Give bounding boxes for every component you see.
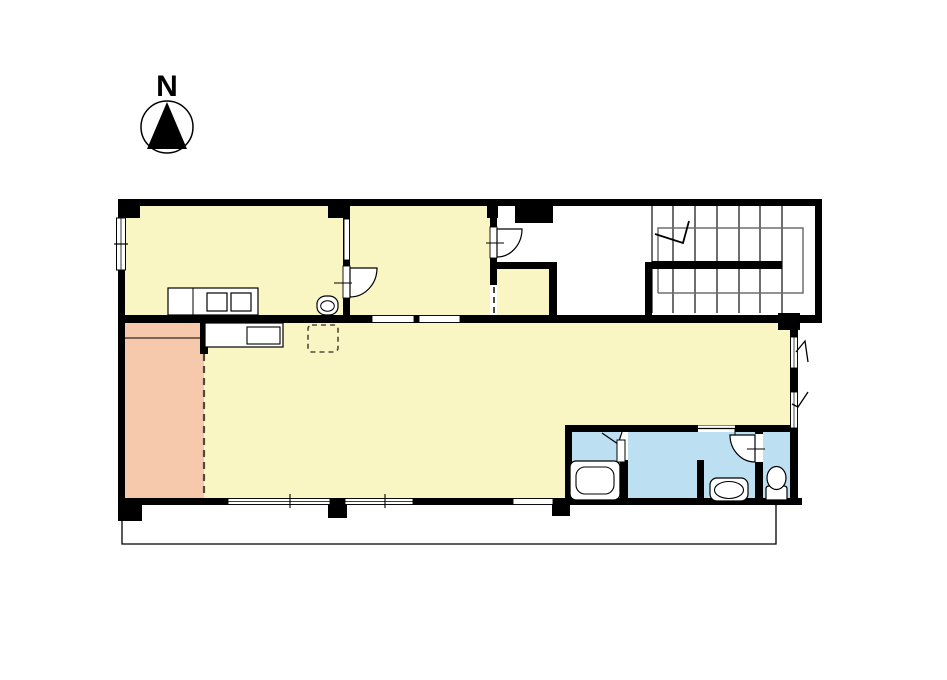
lower-counter (205, 323, 283, 347)
wall-alcove-top (497, 262, 553, 269)
room-bedroom-nook (125, 323, 204, 498)
wall-middle-horizontal (118, 315, 822, 323)
pillar-bottom-right-of-main (552, 498, 570, 516)
wall-washroom-partial (697, 460, 704, 498)
door-hall-entrance (486, 227, 522, 258)
wall-shaft-block (515, 206, 553, 223)
window-right-1 (791, 337, 809, 368)
wall-right-upper (815, 199, 822, 323)
wall-stair-middle (652, 261, 782, 269)
stove-burner-right (231, 293, 251, 311)
wall-bathroom-top (565, 425, 798, 432)
wall-bottom (118, 498, 802, 505)
kitchen-counter (168, 288, 258, 315)
pillar-top-middle (328, 200, 345, 218)
pillar-main-room-top-right (778, 313, 800, 330)
stair-direction-arrow (655, 221, 689, 243)
washbasin (710, 478, 748, 501)
room-top-middle (350, 206, 490, 315)
compass-north-arrow (147, 102, 187, 149)
stove-burner-left (207, 293, 227, 311)
floor-plan-page: N (0, 0, 947, 680)
compass-north-label: N (156, 70, 178, 103)
opening-bottom-wall (513, 499, 553, 505)
pillar-top-left (118, 199, 140, 218)
wall-top (118, 199, 822, 206)
stair-treads (652, 206, 782, 313)
staircase (652, 206, 803, 313)
window-left-wall (114, 218, 128, 270)
pillar-top-hall (487, 199, 498, 218)
window-partition-top-rooms (344, 219, 350, 260)
room-fills (125, 206, 790, 498)
compass: N (141, 70, 193, 153)
window-right-2 (791, 392, 809, 428)
bathtub (570, 461, 620, 500)
round-sink (317, 296, 338, 315)
floor-plan-drawing: N (0, 0, 947, 680)
toilet (766, 467, 787, 501)
pillar-bottom-left (118, 500, 142, 521)
room-storage-alcove (497, 269, 550, 316)
wall-stair-left-lower (645, 262, 652, 323)
wall-alcove-right (549, 262, 557, 323)
pillar-bottom-middle (328, 498, 347, 518)
balcony-outline (122, 505, 776, 544)
